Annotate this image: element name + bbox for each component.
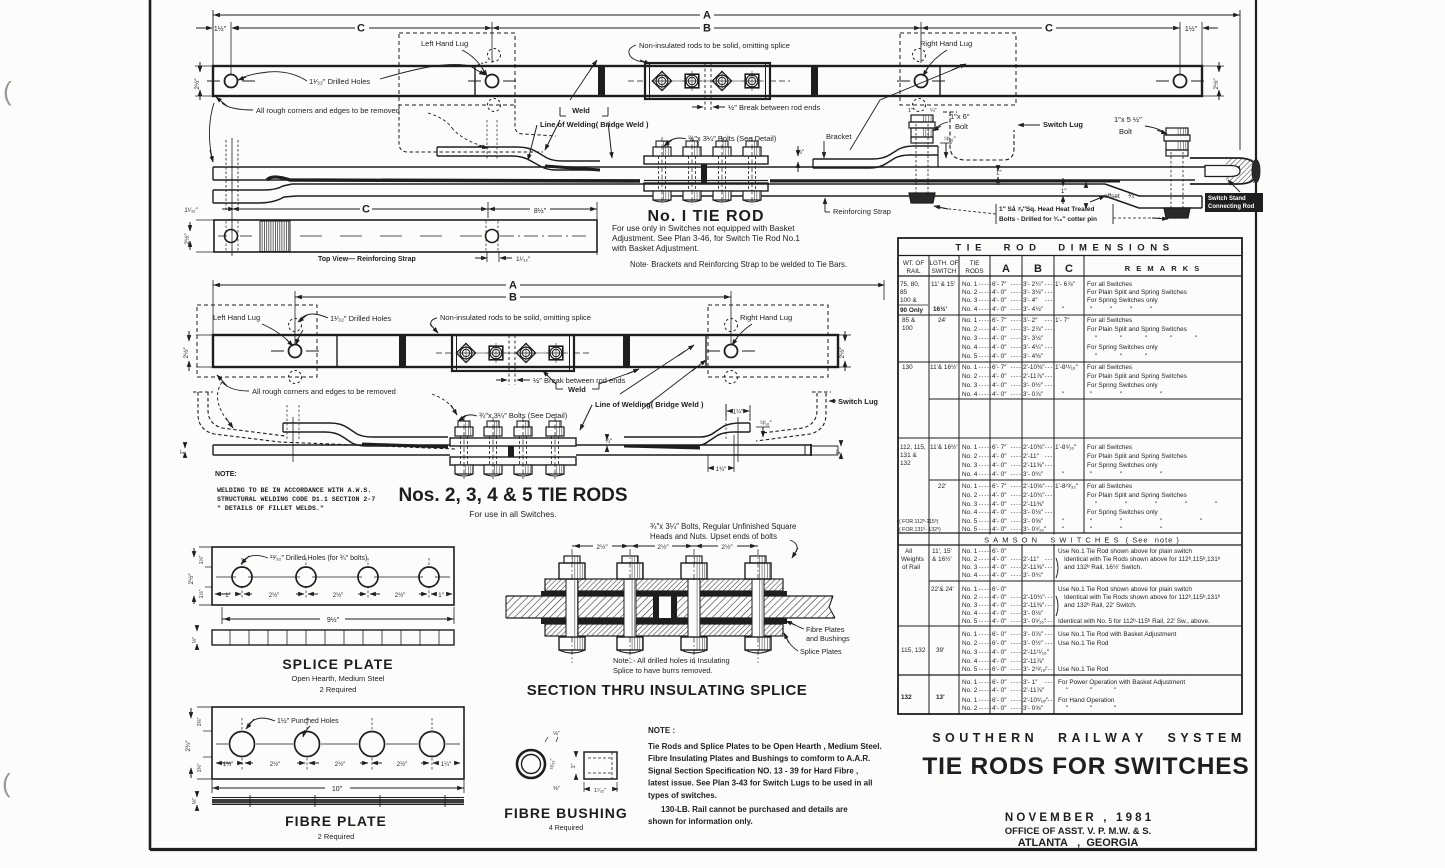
svg-text:3'- 0⅛″: 3'- 0⅛″ (1023, 509, 1044, 516)
svg-text:RAIL: RAIL (907, 268, 921, 275)
svg-text:A: A (509, 280, 517, 292)
svg-text:1⅜″: 1⅜″ (197, 717, 203, 726)
svg-text:Bolts - Drilled for ³⁄₁₆″ cott: Bolts - Drilled for ³⁄₁₆″ cotter pin (999, 216, 1097, 223)
svg-text:WT. OF: WT. OF (903, 260, 924, 267)
svg-text:Top View— Reinforcing Strap: Top View— Reinforcing Strap (318, 256, 416, 263)
svg-text:6'- 7″: 6'- 7″ (992, 281, 1007, 288)
svg-text:Use No.1 Tie Rod: Use No.1 Tie Rod (1058, 666, 1109, 673)
svg-text:No. 3: No. 3 (962, 335, 978, 342)
svg-text:1⅛″: 1⅛″ (199, 589, 205, 598)
svg-text:( FOR 112ᵇ-115ᵇ): ( FOR 112ᵇ-115ᵇ) (899, 519, 939, 525)
svg-text:No. 4: No. 4 (962, 509, 978, 516)
svg-text:Use No.1 Tie Rod shown above f: Use No.1 Tie Rod shown above for plain s… (1058, 548, 1192, 555)
svg-text:TIE: TIE (970, 260, 980, 267)
svg-text:Left Hand Lug: Left Hand Lug (213, 313, 260, 322)
svg-text:4'- 0″: 4'- 0″ (992, 658, 1007, 665)
svg-text:No. 3: No. 3 (962, 649, 978, 656)
svg-text:of Rail: of Rail (902, 564, 920, 571)
svg-text:C: C (1065, 263, 1073, 275)
svg-text:and Bushings: and Bushings (806, 634, 850, 643)
svg-text:For Spring Switches only: For Spring Switches only (1087, 382, 1158, 389)
svg-text:85 &: 85 & (902, 317, 916, 324)
svg-text:All: All (905, 548, 912, 555)
svg-text:4'- 0″: 4'- 0″ (992, 509, 1007, 516)
svg-text:11', 15': 11', 15' (932, 548, 952, 555)
svg-text:4'- 0″: 4'- 0″ (992, 564, 1007, 571)
svg-text:6'- 0″: 6'- 0″ (992, 631, 1007, 638)
svg-text:6'- 7″: 6'- 7″ (992, 317, 1007, 324)
svg-text:No. 1: No. 1 (962, 548, 978, 555)
svg-text:3'- 0¾″: 3'- 0¾″ (1023, 471, 1044, 478)
svg-text:4'- 0″: 4'- 0″ (992, 649, 1007, 656)
svg-text:131 &: 131 & (900, 452, 917, 459)
svg-text:No. 5: No. 5 (962, 666, 978, 673)
svg-text:Note· Brackets and Reinforci: Note· Brackets and Reinforcing Strap to … (630, 260, 847, 269)
svg-text:85: 85 (900, 289, 908, 296)
svg-text:4'- 0″: 4'- 0″ (992, 335, 1007, 342)
svg-text:130-LB. Rail cannot be purch: 130-LB. Rail cannot be purchased and det… (661, 805, 848, 814)
svg-text:For Spring Switches only: For Spring Switches only (1087, 297, 1158, 304)
svg-text:4'- 0″: 4'- 0″ (992, 572, 1007, 579)
svg-text:4'- 0″: 4'- 0″ (992, 556, 1007, 563)
svg-text:shown for information only.: shown for information only. (648, 817, 753, 826)
svg-text:C: C (362, 204, 370, 216)
svg-text:No. 1: No. 1 (962, 586, 978, 593)
svg-text:Tie Rods and Splice Plates to: Tie Rods and Splice Plates to be Open He… (648, 742, 882, 751)
svg-text:⅜″: ⅜″ (553, 786, 560, 792)
svg-text:No. 5: No. 5 (962, 353, 978, 360)
svg-text:4'- 0″: 4'- 0″ (992, 687, 1007, 694)
svg-text:B: B (509, 292, 517, 304)
svg-text:4'- 0″: 4'- 0″ (992, 297, 1007, 304)
svg-text:RODS: RODS (965, 268, 983, 275)
svg-text:Adjustment. See Plan 3-46, f: Adjustment. See Plan 3-46, for Switch Ti… (612, 234, 800, 243)
svg-text:No. 2: No. 2 (962, 640, 978, 647)
svg-text:& 16½': & 16½' (932, 555, 952, 563)
svg-text:( FOR 131ᵇ- 132ᵇ): ( FOR 131ᵇ- 132ᵇ) (899, 527, 941, 533)
svg-text:Use No.1 Tie Rod with Basket: Use No.1 Tie Rod with Basket Adjustment (1058, 631, 1177, 638)
svg-text:2'-11⅜″: 2'-11⅜″ (1023, 501, 1045, 508)
svg-text:Right Hand Lug: Right Hand Lug (920, 39, 972, 48)
svg-text:2'-11⅝″: 2'-11⅝″ (1023, 462, 1045, 469)
svg-text:2½″: 2½″ (269, 592, 280, 599)
svg-text:¾″x 3¼″ Bolts (See Detail): ¾″x 3¼″ Bolts (See Detail) (479, 411, 568, 420)
svg-text:No. 4: No. 4 (962, 306, 978, 313)
svg-text:2½″: 2½″ (183, 233, 191, 245)
svg-text:For Spring Switches only: For Spring Switches only (1087, 462, 1158, 469)
svg-text:No. 4: No. 4 (962, 610, 978, 617)
svg-text:3'- 4⅜″: 3'- 4⅜″ (1023, 353, 1044, 360)
svg-text:1'- 7″: 1'- 7″ (1055, 317, 1070, 324)
svg-text:2¾″: 2¾″ (185, 740, 192, 752)
svg-text:No. 1: No. 1 (962, 483, 978, 490)
svg-text:1¾″: 1¾″ (716, 467, 727, 473)
svg-text:11'& 16½': 11'& 16½' (930, 363, 958, 371)
svg-text:6'- 7″: 6'- 7″ (992, 364, 1007, 371)
svg-text:Use No.1 Tie Rod shown above: Use No.1 Tie Rod shown above for plain s… (1058, 586, 1192, 593)
svg-text:No. 1: No. 1 (962, 364, 978, 371)
svg-text:Bracket: Bracket (826, 132, 852, 141)
svg-text:4'- 0″: 4'- 0″ (992, 518, 1007, 525)
svg-text:132: 132 (901, 694, 912, 701)
svg-text:6'- 7″: 6'- 7″ (992, 483, 1007, 490)
svg-text:2'-10⅝″: 2'-10⅝″ (1023, 483, 1045, 490)
svg-text:WELDING TO BE IN ACCORDANCE WI: WELDING TO BE IN ACCORDANCE WITH A.W.S. (217, 487, 371, 494)
svg-text:2½″: 2½″ (333, 592, 344, 599)
svg-text:Bolt: Bolt (955, 122, 969, 131)
svg-text:4'- 0″: 4'- 0″ (992, 306, 1007, 313)
svg-text:For Plain Split and Spring Swi: For Plain Split and Spring Switches (1087, 326, 1187, 333)
svg-text:No. I TIE ROD: No. I TIE ROD (648, 208, 765, 225)
svg-text:No. 1: No. 1 (962, 679, 978, 686)
svg-text:2'-11⅞″: 2'-11⅞″ (1023, 687, 1045, 694)
svg-text:No. 4: No. 4 (962, 572, 978, 579)
svg-text:3'- 0½″: 3'- 0½″ (1023, 639, 1044, 647)
svg-text:2½″: 2½″ (193, 78, 201, 90)
svg-text:For Plain Split and Spring Swi: For Plain Split and Spring Switches (1087, 289, 1187, 296)
svg-text:1″: 1″ (1061, 189, 1067, 195)
svg-text:3'- 0¾″: 3'- 0¾″ (1023, 572, 1044, 579)
svg-text:and 132ᵇ Rail, 22' Switch.: and 132ᵇ Rail, 22' Switch. (1064, 602, 1137, 609)
svg-text:10″: 10″ (332, 786, 343, 793)
svg-text:1¹⁄₃₂″ Drilled Holes: 1¹⁄₃₂″ Drilled Holes (309, 77, 370, 86)
svg-text:130: 130 (902, 364, 913, 371)
svg-text:Left Hand Lug: Left Hand Lug (421, 39, 468, 48)
svg-text:Use No.1 Tie Rod: Use No.1 Tie Rod (1058, 640, 1109, 647)
svg-text:2½″: 2½″ (596, 543, 608, 551)
svg-text:B: B (703, 23, 711, 35)
svg-text:1¹⁄₃₂″ Drilled Holes: 1¹⁄₃₂″ Drilled Holes (330, 314, 391, 323)
svg-text:1¼″: 1¼″ (441, 762, 452, 768)
svg-text:S O U T H E R N R A I L W: S O U T H E R N R A I L W A Y S Y S T E … (932, 731, 1242, 745)
svg-text:100: 100 (902, 325, 913, 332)
svg-text:4'- 0″: 4'- 0″ (992, 618, 1007, 625)
svg-text:Open Hearth, Medium Steel: Open Hearth, Medium Steel (292, 674, 385, 683)
svg-text:For all Switches: For all Switches (1087, 364, 1132, 371)
svg-text:No. 4: No. 4 (962, 658, 978, 665)
svg-text:LGTH. OF: LGTH. OF (929, 260, 958, 267)
svg-text:For Plain Split and Spring Swi: For Plain Split and Spring Switches (1087, 373, 1187, 380)
svg-text:Switch Lug: Switch Lug (838, 397, 878, 406)
svg-text:3'- 2¹³⁄₁₆″: 3'- 2¹³⁄₁₆″ (1023, 666, 1048, 673)
svg-text:T I E R O D D I M E N: T I E R O D D I M E N S I O N S (955, 243, 1170, 254)
svg-text:ATLANTA , GEORGIA: ATLANTA , GEORGIA (1018, 837, 1139, 849)
svg-text:3'- 4″: 3'- 4″ (1023, 297, 1038, 304)
svg-text:1¹⁄₃₂″: 1¹⁄₃₂″ (516, 256, 531, 263)
svg-text:offset: offset (1104, 193, 1120, 200)
svg-text:For Spring Switches only: For Spring Switches only (1087, 509, 1158, 516)
svg-text:For all Switches: For all Switches (1087, 483, 1132, 490)
svg-text:11' & 15': 11' & 15' (931, 281, 955, 288)
svg-text:4'- 0″: 4'- 0″ (992, 492, 1007, 499)
svg-text:112, 115,: 112, 115, (900, 444, 926, 451)
svg-text:1″: 1″ (180, 449, 186, 454)
svg-text:¾″x 3¼″ Bolts (See Detail): ¾″x 3¼″ Bolts (See Detail) (688, 134, 777, 143)
svg-text:No. 4: No. 4 (962, 344, 978, 351)
svg-text:3'- 1″: 3'- 1″ (1023, 679, 1038, 686)
svg-text:No. 5: No. 5 (962, 526, 978, 533)
svg-text:Identical with Tie Rods shown: Identical with Tie Rods shown above for … (1064, 556, 1221, 563)
svg-text:For Hand Operation: For Hand Operation (1058, 697, 1115, 704)
svg-text:3'- 2″: 3'- 2″ (1023, 317, 1038, 324)
svg-text:6'- 0″: 6'- 0″ (992, 679, 1007, 686)
svg-text:OFFICE OF ASST. V. P. M.: OFFICE OF ASST. V. P. M.W. & S. (1005, 826, 1151, 837)
svg-text:SECTION THRU INSULATING SPL: SECTION THRU INSULATING SPLICE (527, 682, 808, 699)
svg-text:3'- 0⅝″: 3'- 0⅝″ (1023, 518, 1044, 525)
svg-text:No. 1: No. 1 (962, 317, 978, 324)
svg-text:No. 2: No. 2 (962, 326, 978, 333)
svg-text:Identical with No. 5 for 112ᵇ-: Identical with No. 5 for 112ᵇ-115ᵇ Rail,… (1058, 618, 1210, 625)
svg-text:No. 2: No. 2 (962, 492, 978, 499)
svg-text:No. 3: No. 3 (962, 501, 978, 508)
svg-text:TIE RODS FOR SWITCHES: TIE RODS FOR SWITCHES (922, 753, 1249, 780)
svg-text:6'- 0″: 6'- 0″ (992, 640, 1007, 647)
svg-text:¼″: ¼″ (930, 108, 937, 114)
svg-text:Right Hand Lug: Right Hand Lug (740, 313, 792, 322)
svg-text:2'-11⅝″: 2'-11⅝″ (1023, 564, 1045, 571)
svg-text:1″: 1″ (836, 449, 842, 454)
svg-text:3'- 2⅞″: 3'- 2⅞″ (1023, 326, 1044, 333)
svg-text:1½″ Punched Holes: 1½″ Punched Holes (277, 717, 339, 725)
svg-text:9½″: 9½″ (327, 616, 340, 624)
svg-text:1¼″: 1¼″ (733, 410, 744, 416)
svg-text:Heads and Nuts. Upset ends: Heads and Nuts. Upset ends of bolts (650, 532, 777, 541)
svg-text:No. 3: No. 3 (962, 297, 978, 304)
svg-text:4'- 0″: 4'- 0″ (992, 501, 1007, 508)
svg-text:⅛″: ⅛″ (192, 798, 198, 805)
svg-text:SWITCH: SWITCH (932, 268, 957, 275)
svg-text:No. 1: No. 1 (962, 697, 978, 704)
svg-text:and 132ᵇ Rail, 16½' Switch.: and 132ᵇ Rail, 16½' Switch. (1064, 563, 1142, 571)
svg-text:Fibre Insulating Plates and Bu: Fibre Insulating Plates and Bushings to … (648, 754, 870, 763)
svg-text:3'- 0⁹⁄₁₆″: 3'- 0⁹⁄₁₆″ (1023, 526, 1047, 533)
svg-text:Switch Stand: Switch Stand (1208, 196, 1246, 202)
svg-text:Signal Section Specification: Signal Section Specification NO. 13 - 39… (648, 766, 858, 775)
svg-text:1'-8¹¹⁄₁₆″: 1'-8¹¹⁄₁₆″ (1055, 364, 1079, 371)
svg-text:⅛″: ⅛″ (553, 731, 560, 737)
svg-text:For Power Operation with B: For Power Operation with Basket Adjustme… (1058, 679, 1185, 686)
svg-text:¹³⁄₁₆″: ¹³⁄₁₆″ (760, 421, 772, 427)
svg-text:3'- 0⅞″: 3'- 0⅞″ (1023, 391, 1044, 398)
svg-text:4'- 0″: 4'- 0″ (992, 344, 1007, 351)
svg-text:100 &: 100 & (900, 297, 917, 304)
svg-text:No. 2: No. 2 (962, 687, 978, 694)
svg-text:1″: 1″ (438, 593, 444, 599)
svg-text:²³⁄₃₂″ Drilled Holes (for ¾″ b: ²³⁄₃₂″ Drilled Holes (for ¾″ bolts) (270, 555, 367, 562)
svg-text:For use in all Switches.: For use in all Switches. (469, 509, 556, 519)
svg-text:2'-10⅜″: 2'-10⅜″ (1023, 444, 1045, 451)
svg-text:3'- 2¼″: 3'- 2¼″ (1023, 281, 1044, 288)
svg-text:4'- 0″: 4'- 0″ (992, 602, 1007, 609)
svg-text:No. 2: No. 2 (962, 373, 978, 380)
svg-text:NOTE :: NOTE : (648, 726, 675, 735)
svg-text:For Plain Split and Spring Swi: For Plain Split and Spring Switches (1087, 453, 1187, 460)
svg-text:24': 24' (938, 317, 946, 324)
svg-text:1'- 6⅞″: 1'- 6⅞″ (1055, 281, 1076, 288)
svg-text:Connecting Rod: Connecting Rod (1208, 204, 1255, 210)
svg-text:4'- 0″: 4'- 0″ (992, 326, 1007, 333)
svg-text:115, 132: 115, 132 (901, 647, 926, 654)
svg-text:4'- 0″: 4'- 0″ (992, 471, 1007, 478)
svg-text:1″: 1″ (225, 593, 231, 599)
svg-text:Note :- All drilled holes in I: Note :- All drilled holes in Insulating (613, 656, 730, 665)
svg-text:1¼″: 1¼″ (223, 762, 234, 768)
svg-text:11'& 16½': 11'& 16½' (930, 443, 958, 451)
svg-text:¾″: ¾″ (797, 150, 805, 156)
svg-text:4 Required: 4 Required (549, 825, 583, 832)
svg-text:3'- 3⅛″: 3'- 3⅛″ (1023, 289, 1044, 296)
svg-text:2 Required: 2 Required (318, 832, 355, 841)
svg-text:4'- 0″: 4'- 0″ (992, 391, 1007, 398)
svg-text:22'& 24': 22'& 24' (931, 586, 954, 593)
svg-text:A: A (703, 10, 711, 22)
svg-text:No. 1: No. 1 (962, 281, 978, 288)
svg-text:4'- 0″: 4'- 0″ (992, 610, 1007, 617)
svg-text:4'- 0″: 4'- 0″ (992, 373, 1007, 380)
svg-text:Non-insulated rods to be solid: Non-insulated rods to be solid, omitting… (440, 313, 591, 322)
svg-text:Identical with Tie Rods shown: Identical with Tie Rods shown above for … (1064, 594, 1221, 601)
svg-text:4'- 0″: 4'- 0″ (992, 705, 1007, 712)
svg-text:¾: ¾ (1128, 193, 1134, 200)
svg-text:For Spring Switches only: For Spring Switches only (1087, 344, 1158, 351)
svg-text:FIBRE PLATE: FIBRE PLATE (285, 813, 387, 829)
svg-text:(: ( (3, 76, 12, 106)
svg-text:Weld: Weld (568, 385, 586, 394)
svg-text:No. 2: No. 2 (962, 289, 978, 296)
svg-text:4'- 0″: 4'- 0″ (992, 353, 1007, 360)
svg-text:2½″: 2½″ (335, 761, 346, 768)
svg-text:No. 3: No. 3 (962, 602, 978, 609)
svg-text:4'- 0″: 4'- 0″ (992, 382, 1007, 389)
svg-text:¾″x 3¼″ Bolts, Regular Unfinis: ¾″x 3¼″ Bolts, Regular Unfinished Square (650, 522, 796, 531)
svg-text:No. 4: No. 4 (962, 391, 978, 398)
svg-text:All rough corners and edges to: All rough corners and edges to be remove… (252, 387, 396, 396)
svg-text:No. 4: No. 4 (962, 471, 978, 478)
svg-text:For all Switches: For all Switches (1087, 444, 1132, 451)
svg-text:2'-10⁵⁄₁₆″: 2'-10⁵⁄₁₆″ (1023, 697, 1048, 704)
svg-text:90 Only: 90 Only (900, 307, 924, 314)
svg-text:For all Switches: For all Switches (1087, 281, 1132, 288)
svg-text:2½″: 2½″ (397, 761, 408, 768)
svg-text:3'- 0⅝″: 3'- 0⅝″ (1023, 705, 1044, 712)
svg-text:3'- 4⅛″: 3'- 4⅛″ (1023, 306, 1044, 313)
svg-text:1⅛″: 1⅛″ (199, 555, 205, 564)
svg-text:Weights: Weights (901, 556, 924, 563)
svg-text:Bolt: Bolt (1119, 127, 1133, 136)
svg-text:Reinforcing Strap: Reinforcing Strap (833, 207, 891, 216)
svg-text:For all Switches: For all Switches (1087, 317, 1132, 324)
svg-text:1″: 1″ (908, 108, 913, 114)
svg-text:STRUCTURAL WELDING CODE D1.1: STRUCTURAL WELDING CODE D1.1 SECTION 2-7 (217, 496, 375, 503)
svg-text:1½″: 1½″ (1185, 25, 1198, 33)
svg-text:For Plain Split and Spring Swi: For Plain Split and Spring Switches (1087, 492, 1187, 499)
svg-text:No. 1: No. 1 (962, 444, 978, 451)
svg-text:½″ Break between rod ends: ½″ Break between rod ends (533, 376, 626, 385)
svg-text:3'- 0⅛″: 3'- 0⅛″ (1023, 610, 1044, 617)
svg-text:(: ( (2, 768, 11, 798)
svg-text:4'- 0″: 4'- 0″ (992, 453, 1007, 460)
svg-text:2½″: 2½″ (1212, 78, 1220, 90)
svg-text:4'- 0″: 4'- 0″ (992, 289, 1007, 296)
svg-text:2½″: 2½″ (182, 347, 190, 359)
svg-text:Weld: Weld (572, 106, 590, 115)
svg-text:" DETAILS OF FILLET WELDS.": " DETAILS OF FILLET WELDS." (217, 505, 324, 512)
svg-text:132: 132 (900, 460, 911, 467)
svg-text:latest issue. See Plan 3-43 f: latest issue. See Plan 3-43 for Switch L… (648, 779, 873, 788)
svg-text:Fibre Plates: Fibre Plates (806, 625, 845, 634)
svg-text:2½″: 2½″ (657, 543, 669, 551)
svg-text:1¹⁄₃₂″: 1¹⁄₃₂″ (184, 208, 198, 214)
svg-text:2'-10¾″: 2'-10¾″ (1023, 492, 1045, 499)
svg-text:with Basket Adjustment.: with Basket Adjustment. (611, 244, 699, 253)
svg-text:2 Required: 2 Required (320, 685, 357, 694)
svg-text:types of switches.: types of switches. (648, 791, 717, 800)
svg-text:A: A (1002, 263, 1010, 275)
svg-text:1″ Så ⅞″Sq. Head Heat Treated: 1″ Så ⅞″Sq. Head Heat Treated (999, 205, 1094, 213)
svg-text:3'- 3⅛″: 3'- 3⅛″ (1023, 335, 1044, 342)
svg-text:NOTE:: NOTE: (215, 471, 237, 478)
svg-text:2½″: 2½″ (187, 573, 195, 585)
svg-text:No. 2: No. 2 (962, 705, 978, 712)
svg-text:Splice Plates: Splice Plates (800, 647, 842, 656)
svg-text:No. 3: No. 3 (962, 382, 978, 389)
svg-text:Line of Welding( Bridge Weld ): Line of Welding( Bridge Weld ) (540, 120, 649, 129)
svg-text:2'-11″: 2'-11″ (1023, 556, 1040, 563)
svg-text:16½': 16½' (933, 305, 947, 313)
svg-text:1″x 6″: 1″x 6″ (950, 112, 970, 121)
svg-text:2½″: 2½″ (838, 347, 846, 359)
svg-text:No. 2: No. 2 (962, 453, 978, 460)
svg-text:3'- 0⁹⁄₁₆″: 3'- 0⁹⁄₁₆″ (1023, 618, 1047, 625)
svg-text:R E M A R K S: R E M A R K S (1125, 264, 1201, 273)
svg-text:39': 39' (936, 647, 944, 654)
svg-text:6'- 7″: 6'- 7″ (992, 444, 1007, 451)
svg-text:1⅜″: 1⅜″ (197, 763, 203, 772)
svg-text:B: B (1034, 263, 1042, 275)
svg-text:2'-11″: 2'-11″ (1023, 453, 1040, 460)
svg-text:No. 5: No. 5 (962, 518, 978, 525)
svg-text:2'-11¹¹⁄₁₆″: 2'-11¹¹⁄₁₆″ (1023, 649, 1050, 656)
svg-text:2'-11⅞″: 2'-11⅞″ (1023, 373, 1045, 380)
svg-text:2'-11⅜″: 2'-11⅜″ (1023, 602, 1045, 609)
svg-text:8½″: 8½″ (534, 207, 547, 215)
svg-text:C: C (1045, 23, 1053, 35)
svg-text:Splice to have burrs removed.: Splice to have burrs removed. (613, 666, 713, 675)
svg-text:No. 2: No. 2 (962, 556, 978, 563)
svg-text:2'-10¾″: 2'-10¾″ (1023, 594, 1045, 601)
svg-text:3'- 0½″: 3'- 0½″ (1023, 381, 1044, 389)
svg-text:4'- 0″: 4'- 0″ (992, 462, 1007, 469)
svg-text:2'-10⅜″: 2'-10⅜″ (1023, 364, 1045, 371)
svg-text:6'- 0″: 6'- 0″ (992, 697, 1007, 704)
svg-text:1⁷⁄₃₂″: 1⁷⁄₃₂″ (594, 787, 606, 794)
svg-text:6'- 0″: 6'- 0″ (992, 548, 1007, 555)
svg-text:Non-insulated rods to be solid: Non-insulated rods to be solid, omitting… (639, 41, 790, 50)
svg-text:3'- 4¼″: 3'- 4¼″ (1023, 344, 1044, 351)
svg-text:4'- 0″: 4'- 0″ (992, 526, 1007, 533)
svg-text:Switch Lug: Switch Lug (1043, 120, 1083, 129)
svg-text:For use only in Switches: For use only in Switches not equipped wi… (612, 224, 795, 233)
svg-text:1″x 5 ½″: 1″x 5 ½″ (1114, 115, 1142, 124)
svg-text:¾″: ¾″ (605, 439, 613, 445)
svg-text:Line of Welding( Bridge Weld ): Line of Welding( Bridge Weld ) (595, 400, 704, 409)
svg-text:All rough corners and edges to: All rough corners and edges to be remove… (256, 106, 400, 115)
svg-text:1'-8⁹⁄₁₆″: 1'-8⁹⁄₁₆″ (1055, 444, 1077, 451)
svg-text:3'- 0⅞″: 3'- 0⅞″ (1023, 631, 1044, 638)
svg-text:No. 5: No. 5 (962, 618, 978, 625)
svg-text:Nos. 2, 3, 4 & 5 TIE RODS: Nos. 2, 3, 4 & 5 TIE RODS (398, 485, 627, 506)
svg-text:½″: ½″ (191, 637, 198, 644)
